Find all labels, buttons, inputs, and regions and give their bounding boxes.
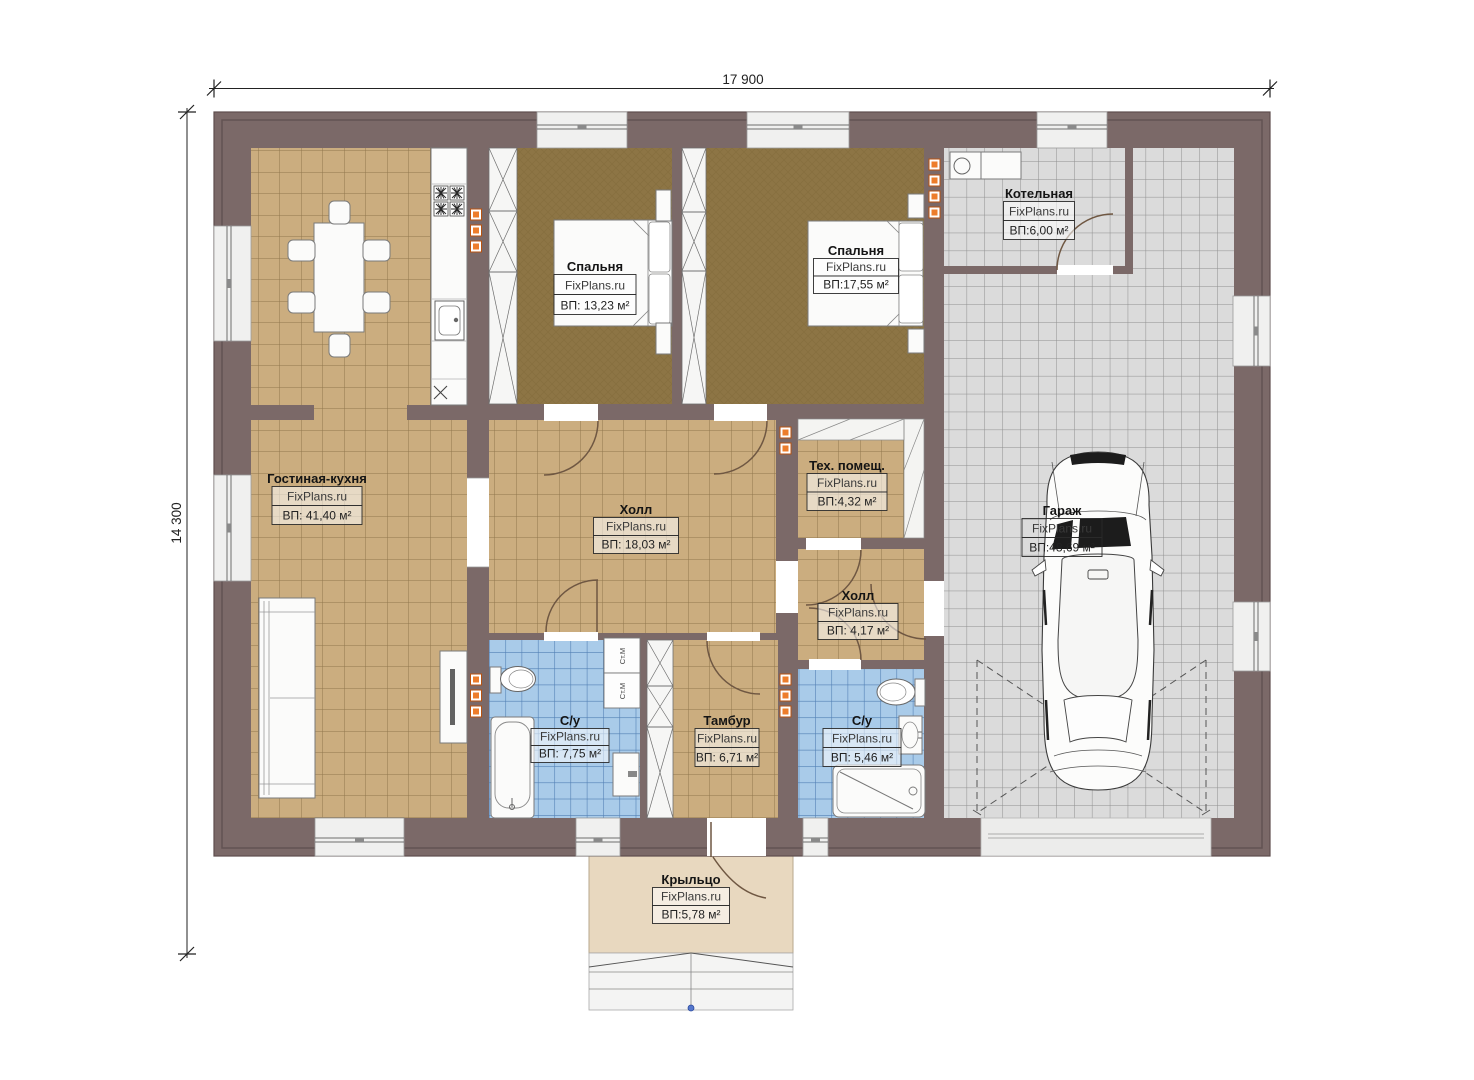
svg-text:17 900: 17 900 (722, 72, 763, 87)
svg-text:ВП: 13,23 м²: ВП: 13,23 м² (561, 299, 630, 313)
svg-text:ВП: 7,75 м²: ВП: 7,75 м² (539, 747, 601, 761)
svg-text:FixPlans.ru: FixPlans.ru (287, 490, 347, 504)
svg-text:Холл: Холл (842, 588, 875, 603)
svg-text:FixPlans.ru: FixPlans.ru (697, 732, 757, 746)
svg-text:ВП: 41,40 м²: ВП: 41,40 м² (283, 509, 352, 523)
svg-text:Ст.М: Ст.М (618, 683, 627, 699)
svg-text:Ст.М: Ст.М (618, 648, 627, 664)
svg-text:Крыльцо: Крыльцо (661, 872, 720, 887)
svg-text:14 300: 14 300 (169, 502, 184, 543)
svg-text:Спальня: Спальня (567, 259, 623, 274)
svg-text:Тамбур: Тамбур (703, 713, 750, 728)
svg-text:Гостиная-кухня: Гостиная-кухня (267, 471, 367, 486)
svg-text:FixPlans.ru: FixPlans.ru (540, 730, 600, 744)
svg-text:FixPlans.ru: FixPlans.ru (565, 279, 625, 293)
svg-text:FixPlans.ru: FixPlans.ru (1009, 205, 1069, 219)
svg-text:ВП:4,32 м²: ВП:4,32 м² (818, 495, 877, 509)
svg-text:Гараж: Гараж (1043, 503, 1083, 518)
svg-text:ВП: 5,46 м²: ВП: 5,46 м² (831, 751, 893, 765)
svg-text:FixPlans.ru: FixPlans.ru (817, 476, 877, 490)
svg-text:ВП: 4,17 м²: ВП: 4,17 м² (827, 624, 889, 638)
svg-text:FixPlans.ru: FixPlans.ru (832, 732, 892, 746)
svg-text:FixPlans.ru: FixPlans.ru (661, 890, 721, 904)
svg-text:ВП:48,69 м²: ВП:48,69 м² (1029, 541, 1095, 555)
svg-text:ВП:17,55 м²: ВП:17,55 м² (823, 278, 889, 292)
svg-text:Тех. помещ.: Тех. помещ. (809, 458, 885, 473)
svg-text:ВП: 18,03 м²: ВП: 18,03 м² (602, 538, 671, 552)
svg-text:FixPlans.ru: FixPlans.ru (1032, 522, 1092, 536)
svg-text:С/у: С/у (560, 713, 581, 728)
svg-text:Холл: Холл (620, 502, 653, 517)
svg-text:Котельная: Котельная (1005, 186, 1073, 201)
svg-text:FixPlans.ru: FixPlans.ru (828, 606, 888, 620)
svg-text:С/у: С/у (852, 713, 873, 728)
svg-text:Спальня: Спальня (828, 243, 884, 258)
svg-text:ВП:5,78 м²: ВП:5,78 м² (662, 908, 721, 922)
svg-text:FixPlans.ru: FixPlans.ru (826, 260, 886, 274)
svg-text:FixPlans.ru: FixPlans.ru (606, 520, 666, 534)
svg-text:ВП: 6,71 м²: ВП: 6,71 м² (696, 751, 758, 765)
svg-text:ВП:6,00 м²: ВП:6,00 м² (1010, 224, 1069, 238)
